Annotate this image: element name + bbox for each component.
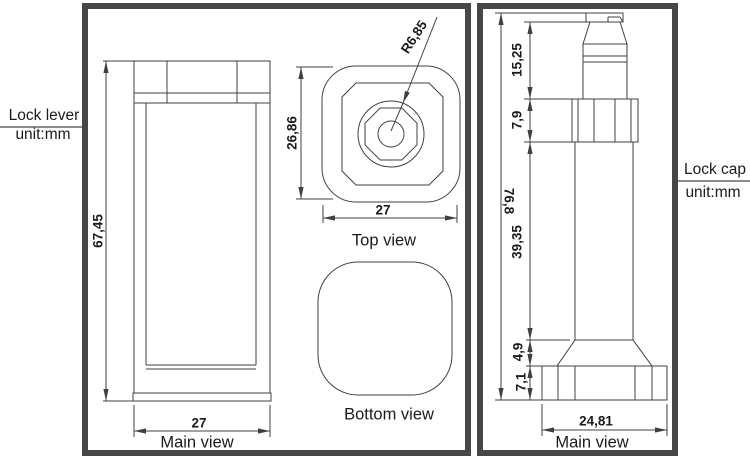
lock-cap-unit: unit:mm: [685, 184, 740, 202]
dim-cap-base-width: 24,81: [579, 414, 613, 429]
lock-lever-panel-frame: [85, 6, 468, 453]
technical-drawing-page: Lock lever unit:mm Lock cap unit:mm 67,4…: [0, 0, 750, 464]
dim-cap-shaft-height: 39,35: [510, 225, 525, 259]
lock-lever-title: Lock lever: [9, 107, 80, 125]
lock-lever-bottom-view-drawing: [318, 262, 452, 395]
caption-cap-main-view: Main view: [555, 434, 628, 453]
dim-cap-knob-height: 15,25: [510, 43, 525, 77]
caption-lever-main-view: Main view: [160, 434, 233, 453]
caption-bottom-view: Bottom view: [344, 406, 434, 425]
dim-cap-total-height: 76,8: [502, 188, 517, 214]
lock-lever-unit: unit:mm: [15, 126, 70, 144]
lock-cap-title: Lock cap: [684, 161, 746, 179]
dim-top-view-height: 26,86: [285, 116, 300, 150]
caption-top-view: Top view: [352, 232, 416, 251]
dim-lever-height: 67,45: [91, 214, 106, 248]
dim-cap-flare-height: 4,9: [511, 343, 526, 362]
lock-lever-main-view-drawing: [103, 61, 271, 437]
dim-cap-base-height: 7,1: [514, 373, 529, 392]
dim-lever-width: 27: [191, 416, 206, 431]
lock-lever-top-view-drawing: [296, 17, 460, 223]
dim-cap-collar-height: 7,9: [510, 111, 525, 130]
dim-top-view-width: 27: [375, 203, 390, 218]
